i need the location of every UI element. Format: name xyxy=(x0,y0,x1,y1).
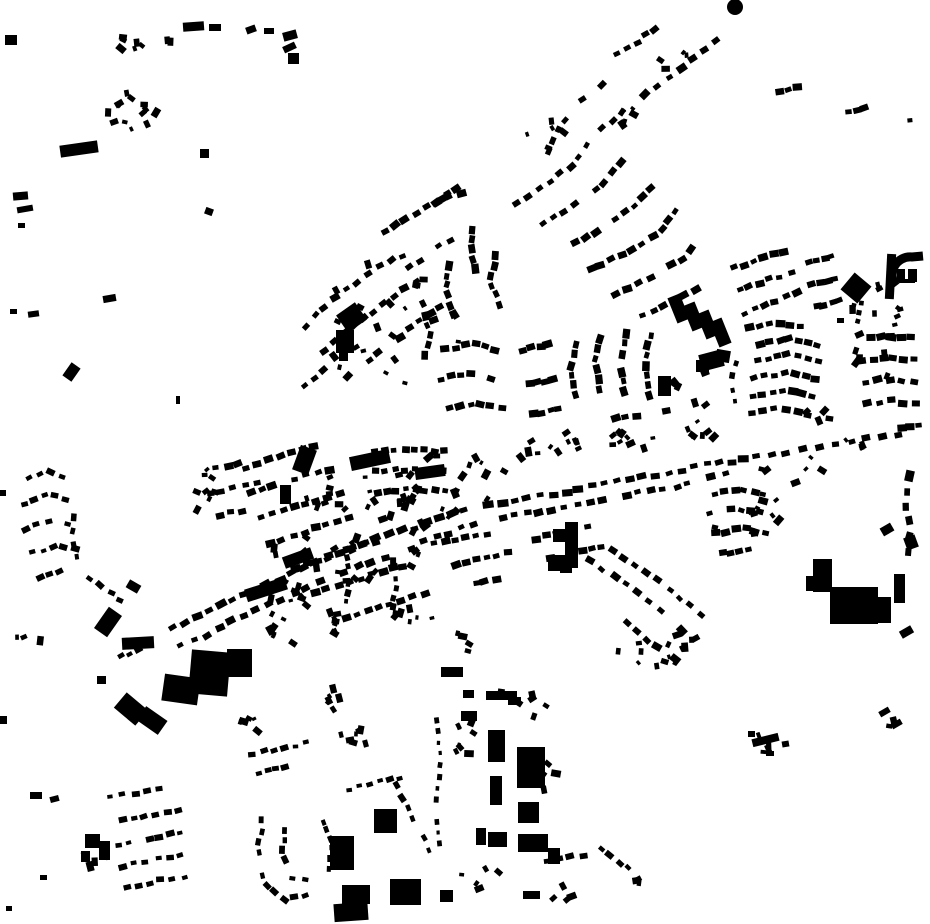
scatter-buildings-layer xyxy=(15,34,904,904)
landmark-dot xyxy=(727,0,743,15)
large-buildings-layer xyxy=(0,21,919,922)
figure-ground-map-canvas xyxy=(0,0,930,924)
building-footprint-map xyxy=(0,0,930,924)
